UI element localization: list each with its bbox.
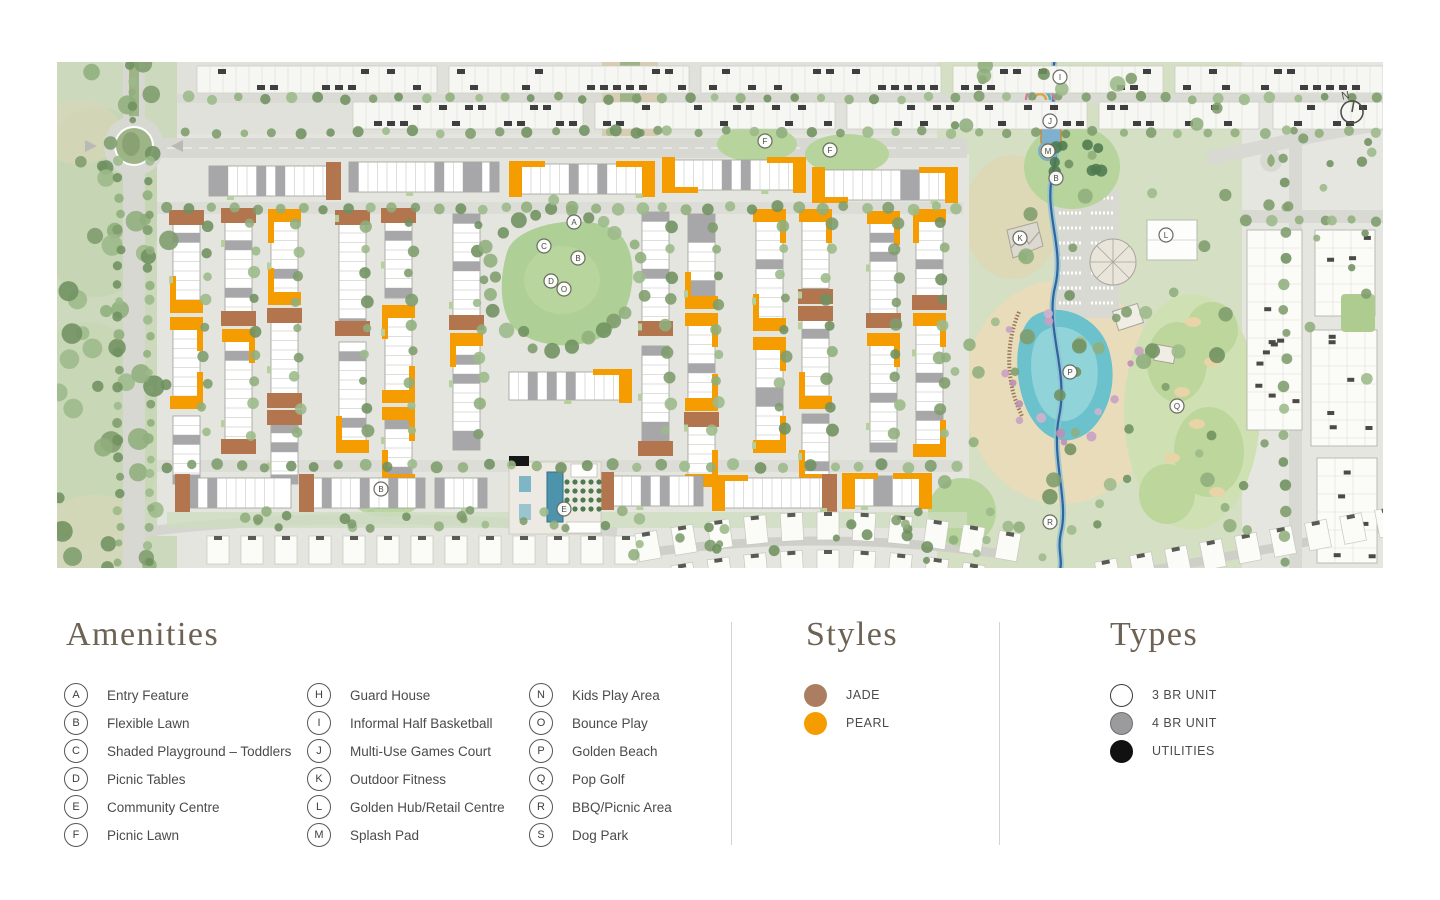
amenity-letter-badge: H [307, 683, 331, 707]
map-marker-L: L [1159, 228, 1173, 242]
amenity-label: Splash Pad [350, 828, 419, 843]
amenity-item: AEntry Feature [64, 681, 291, 709]
svg-text:D: D [548, 277, 554, 286]
amenity-letter-badge: P [529, 739, 553, 763]
type-item: 3 BR UNIT [1110, 681, 1217, 709]
styles-list: JADEPEARL [804, 681, 890, 737]
amenity-item: RBBQ/Picnic Area [529, 793, 672, 821]
amenity-item: OBounce Play [529, 709, 672, 737]
amenity-item: SDog Park [529, 821, 672, 849]
amenity-item: PGolden Beach [529, 737, 672, 765]
svg-text:P: P [1067, 368, 1072, 377]
svg-text:I: I [1059, 73, 1061, 82]
amenity-letter-badge: M [307, 823, 331, 847]
style-item: PEARL [804, 709, 890, 737]
amenity-letter-badge: C [64, 739, 88, 763]
style-swatch [804, 712, 827, 735]
amenity-item: IInformal Half Basketball [307, 709, 505, 737]
map-marker-B: B [1049, 171, 1063, 185]
master-plan-map: ACBDOFFEBIJMBKLPQR N [57, 62, 1383, 568]
amenity-item: FPicnic Lawn [64, 821, 291, 849]
type-swatch [1110, 740, 1133, 763]
map-marker-F: F [823, 143, 837, 157]
amenities-column-3: NKids Play AreaOBounce PlayPGolden Beach… [529, 681, 672, 849]
amenity-item: BFlexible Lawn [64, 709, 291, 737]
amenity-item: MSplash Pad [307, 821, 505, 849]
amenity-label: Guard House [350, 688, 430, 703]
amenity-letter-badge: E [64, 795, 88, 819]
amenity-letter-badge: N [529, 683, 553, 707]
map-marker-A: A [567, 215, 581, 229]
amenity-label: Shaded Playground – Toddlers [107, 744, 291, 759]
type-swatch [1110, 712, 1133, 735]
style-swatch [804, 684, 827, 707]
svg-text:A: A [571, 218, 577, 227]
amenity-letter-badge: A [64, 683, 88, 707]
amenity-item: NKids Play Area [529, 681, 672, 709]
style-label: PEARL [846, 716, 890, 730]
map-marker-B: B [571, 251, 585, 265]
amenity-label: Flexible Lawn [107, 716, 190, 731]
amenity-letter-badge: F [64, 823, 88, 847]
amenity-label: Picnic Lawn [107, 828, 179, 843]
amenity-label: Bounce Play [572, 716, 648, 731]
map-marker-F: F [758, 134, 772, 148]
svg-text:F: F [763, 137, 768, 146]
map-marker-O: O [557, 282, 571, 296]
amenity-letter-badge: L [307, 795, 331, 819]
amenities-column-1: AEntry FeatureBFlexible LawnCShaded Play… [64, 681, 291, 849]
amenities-title: Amenities [66, 616, 219, 654]
amenity-label: Entry Feature [107, 688, 189, 703]
types-list: 3 BR UNIT4 BR UNITUTILITIES [1110, 681, 1217, 765]
amenity-label: Community Centre [107, 800, 220, 815]
amenity-item: HGuard House [307, 681, 505, 709]
map-marker-R: R [1043, 515, 1057, 529]
svg-text:K: K [1017, 234, 1023, 243]
amenity-label: Informal Half Basketball [350, 716, 493, 731]
svg-text:R: R [1047, 518, 1053, 527]
amenity-letter-badge: K [307, 767, 331, 791]
type-swatch [1110, 684, 1133, 707]
amenity-item: DPicnic Tables [64, 765, 291, 793]
style-label: JADE [846, 688, 880, 702]
map-marker-P: P [1063, 365, 1077, 379]
amenity-item: LGolden Hub/Retail Centre [307, 793, 505, 821]
master-plan-svg: ACBDOFFEBIJMBKLPQR N [57, 62, 1383, 568]
svg-text:B: B [1053, 174, 1058, 183]
type-item: 4 BR UNIT [1110, 709, 1217, 737]
map-marker-E: E [557, 502, 571, 516]
svg-text:Q: Q [1174, 402, 1180, 411]
types-title: Types [1110, 616, 1198, 654]
type-label: 3 BR UNIT [1152, 688, 1217, 702]
svg-text:M: M [1045, 147, 1052, 156]
amenity-letter-badge: D [64, 767, 88, 791]
amenity-label: Picnic Tables [107, 772, 186, 787]
map-marker-J: J [1043, 114, 1057, 128]
map-marker-Q: Q [1170, 399, 1184, 413]
map-marker-C: C [537, 239, 551, 253]
amenity-label: Dog Park [572, 828, 628, 843]
svg-text:B: B [575, 254, 580, 263]
map-marker-B: B [374, 482, 388, 496]
type-label: UTILITIES [1152, 744, 1215, 758]
masterplan-page: { "map": { "compass_label": "N", "marker… [0, 0, 1440, 900]
amenity-label: Multi-Use Games Court [350, 744, 491, 759]
amenity-label: BBQ/Picnic Area [572, 800, 672, 815]
amenity-label: Golden Hub/Retail Centre [350, 800, 505, 815]
amenity-label: Golden Beach [572, 744, 658, 759]
amenity-label: Pop Golf [572, 772, 625, 787]
style-item: JADE [804, 681, 890, 709]
legend-divider-left [731, 622, 732, 845]
amenity-letter-badge: O [529, 711, 553, 735]
amenity-letter-badge: Q [529, 767, 553, 791]
svg-text:C: C [541, 242, 547, 251]
amenity-item: KOutdoor Fitness [307, 765, 505, 793]
svg-text:F: F [828, 146, 833, 155]
amenity-item: CShaded Playground – Toddlers [64, 737, 291, 765]
amenity-letter-badge: I [307, 711, 331, 735]
svg-text:L: L [1164, 231, 1169, 240]
amenity-letter-badge: J [307, 739, 331, 763]
svg-text:J: J [1048, 117, 1052, 126]
amenity-item: JMulti-Use Games Court [307, 737, 505, 765]
amenity-letter-badge: R [529, 795, 553, 819]
legend-divider-right [999, 622, 1000, 845]
amenities-column-2: HGuard HouseIInformal Half BasketballJMu… [307, 681, 505, 849]
map-marker-D: D [544, 274, 558, 288]
map-marker-M: M [1041, 144, 1055, 158]
amenity-label: Kids Play Area [572, 688, 660, 703]
map-marker-K: K [1013, 231, 1027, 245]
svg-text:B: B [378, 485, 383, 494]
type-item: UTILITIES [1110, 737, 1217, 765]
type-label: 4 BR UNIT [1152, 716, 1217, 730]
amenity-item: ECommunity Centre [64, 793, 291, 821]
amenity-label: Outdoor Fitness [350, 772, 446, 787]
amenity-letter-badge: S [529, 823, 553, 847]
svg-text:O: O [561, 285, 567, 294]
map-marker-I: I [1053, 70, 1067, 84]
styles-title: Styles [806, 616, 898, 654]
svg-text:E: E [561, 505, 566, 514]
amenity-item: QPop Golf [529, 765, 672, 793]
amenity-letter-badge: B [64, 711, 88, 735]
